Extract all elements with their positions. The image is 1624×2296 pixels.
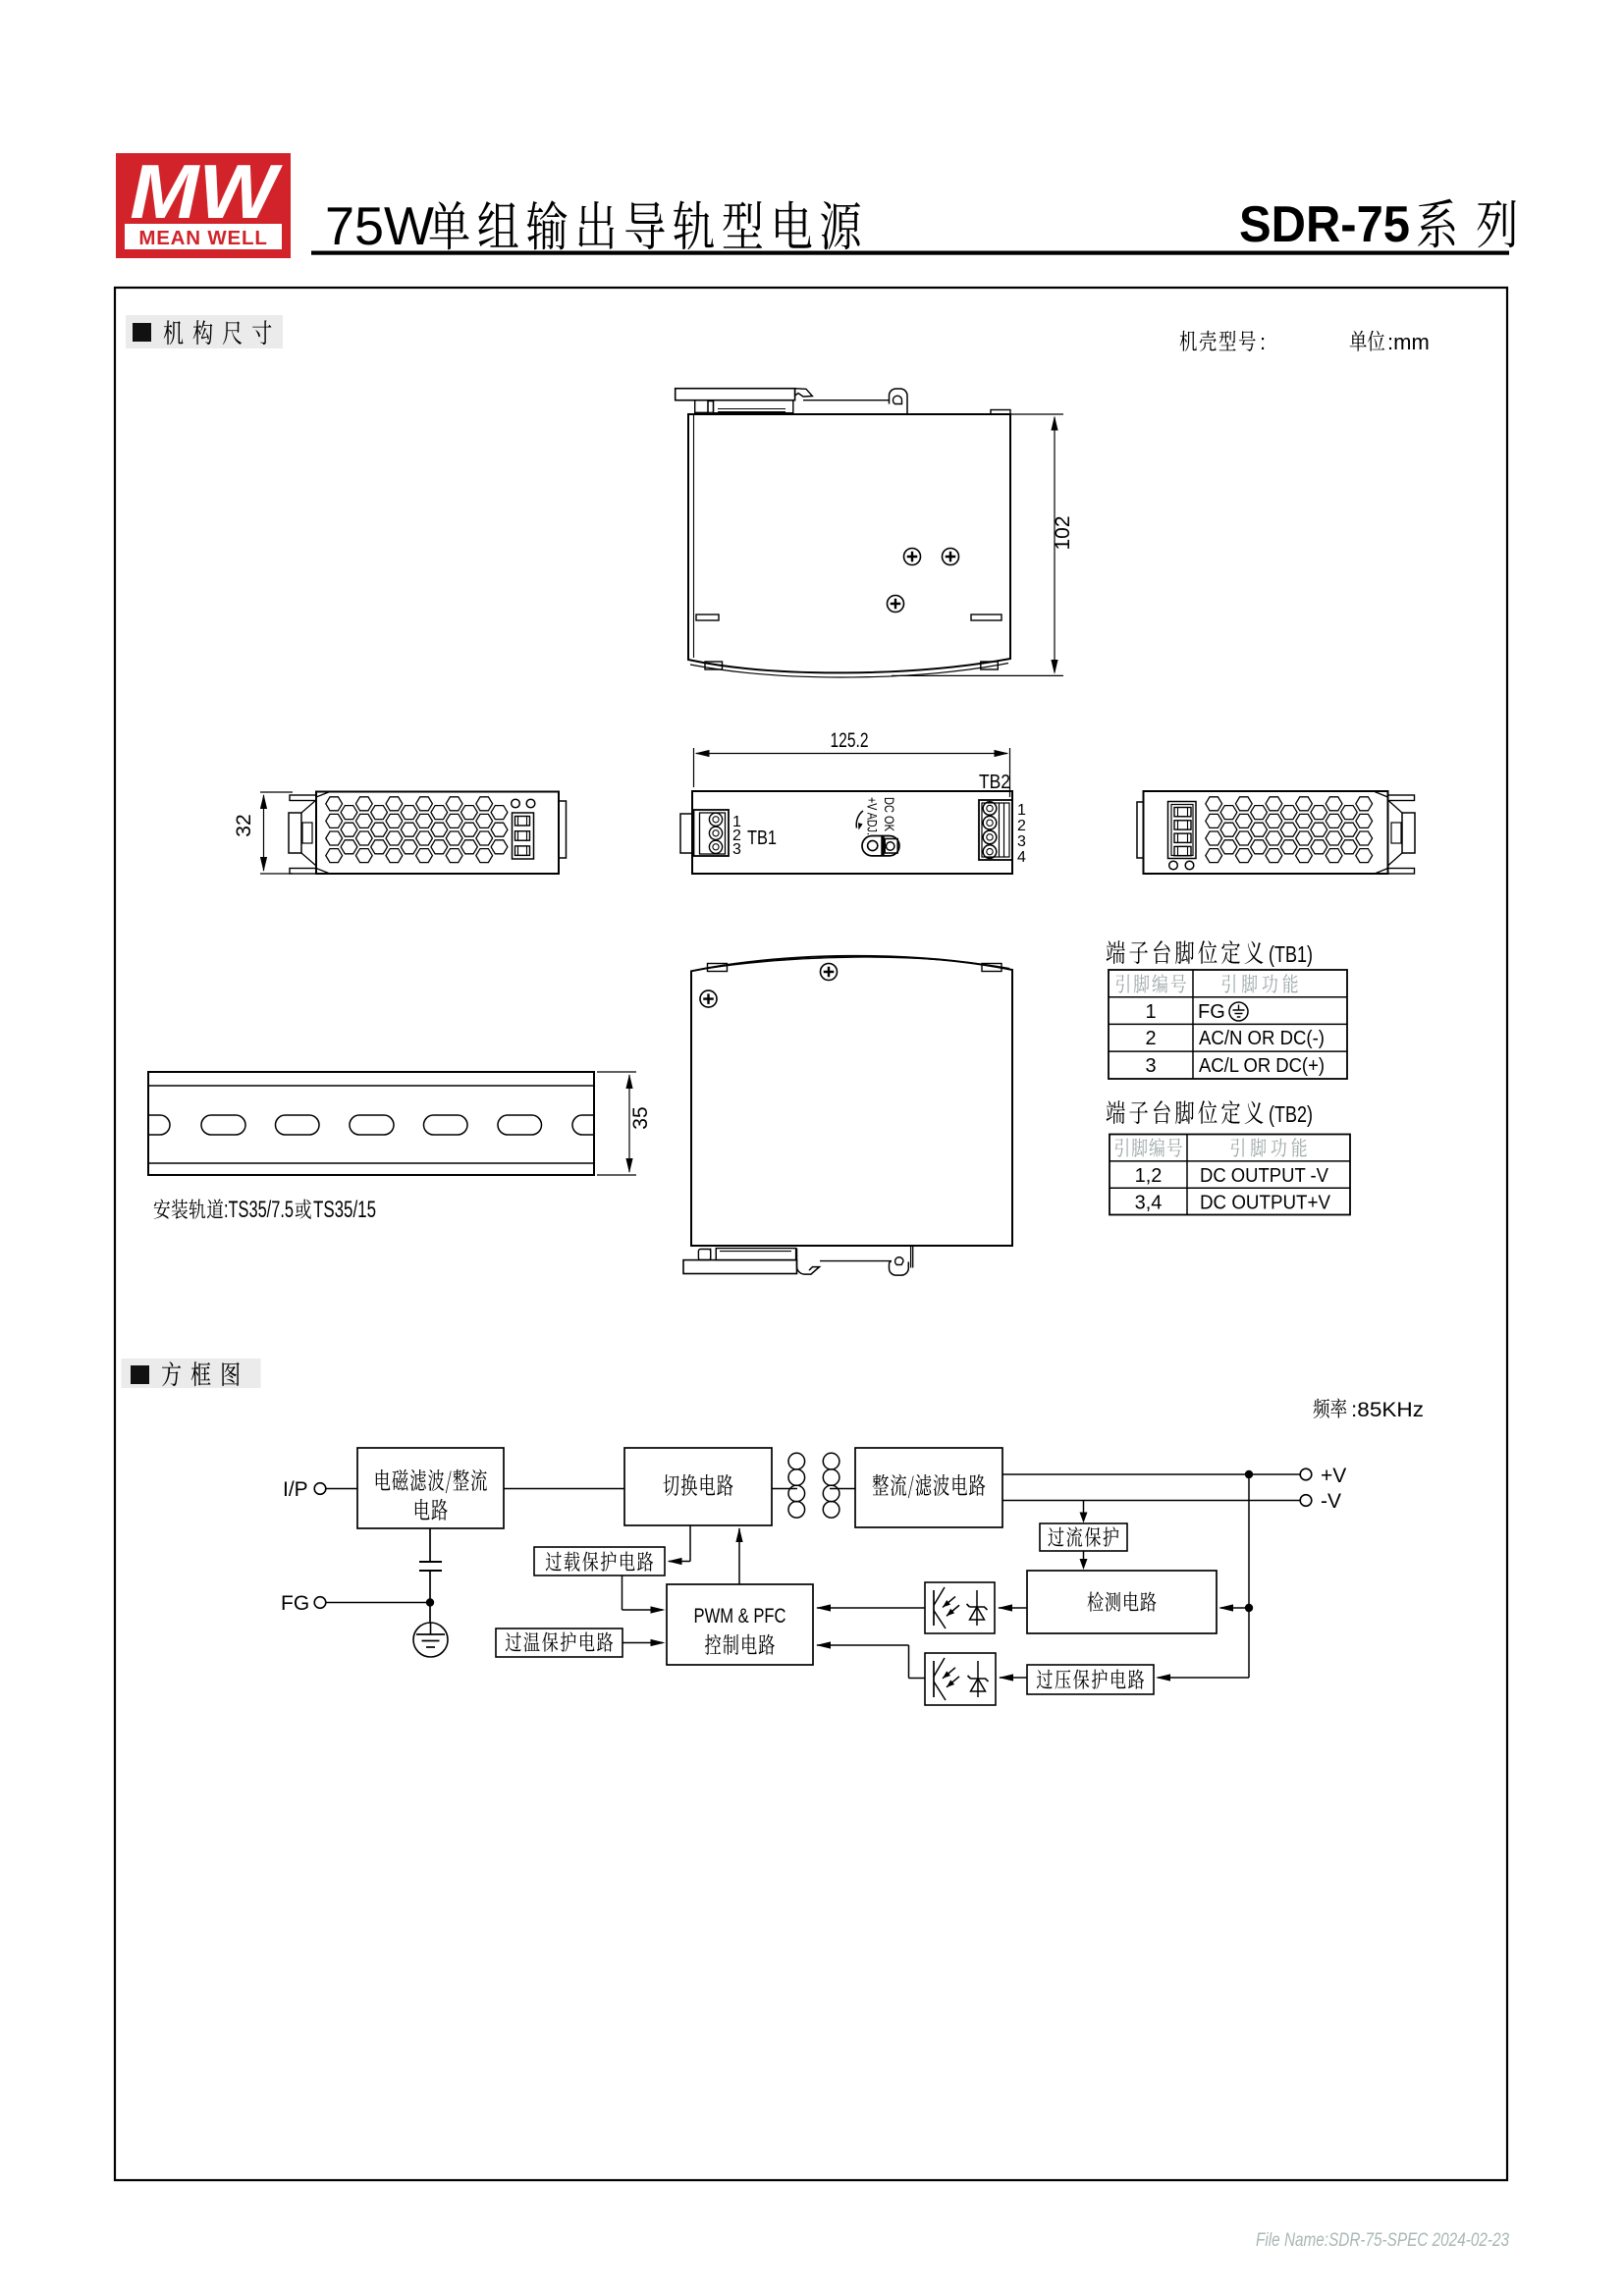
svg-text:(TB2): (TB2)	[1269, 1101, 1313, 1127]
svg-text:AC/L OR DC(+): AC/L OR DC(+)	[1199, 1055, 1325, 1077]
svg-text::: :	[1260, 330, 1266, 354]
svg-text:1: 1	[1017, 802, 1026, 819]
svg-text:I/P: I/P	[283, 1478, 308, 1501]
svg-text:1: 1	[1145, 1001, 1156, 1023]
svg-text:3,4: 3,4	[1135, 1193, 1163, 1214]
svg-text:+V: +V	[1321, 1465, 1346, 1487]
svg-text:DC OUTPUT -V: DC OUTPUT -V	[1200, 1165, 1329, 1187]
svg-text::mm: :mm	[1387, 330, 1430, 354]
svg-text:TB1: TB1	[747, 828, 777, 849]
svg-text:3: 3	[1017, 833, 1026, 850]
svg-text:DC OK: DC OK	[882, 797, 896, 831]
svg-text:TS35/15: TS35/15	[313, 1197, 376, 1223]
svg-text:TB2: TB2	[979, 772, 1010, 793]
svg-text:2: 2	[1017, 818, 1026, 834]
svg-text:35: 35	[629, 1106, 652, 1129]
svg-text:32: 32	[233, 814, 255, 836]
svg-text:SDR-75: SDR-75	[1239, 196, 1410, 253]
svg-text:MEAN WELL: MEAN WELL	[138, 227, 267, 249]
svg-text:3: 3	[1145, 1055, 1156, 1077]
svg-text:AC/N OR DC(-): AC/N OR DC(-)	[1199, 1028, 1325, 1049]
svg-text:1,2: 1,2	[1135, 1165, 1163, 1187]
svg-text:75W: 75W	[325, 195, 434, 256]
svg-text:MW: MW	[130, 150, 283, 235]
svg-text:-V: -V	[1321, 1490, 1341, 1513]
svg-text:PWM & PFC: PWM & PFC	[694, 1605, 786, 1628]
svg-text:3: 3	[732, 841, 741, 858]
svg-text:125.2: 125.2	[831, 729, 869, 752]
svg-text:102: 102	[1052, 515, 1074, 550]
svg-text:(TB1): (TB1)	[1269, 941, 1313, 967]
svg-text:DC OUTPUT+V: DC OUTPUT+V	[1200, 1193, 1331, 1214]
svg-text:4: 4	[1017, 849, 1026, 866]
svg-text:FG: FG	[281, 1592, 309, 1615]
svg-text:+V ADJ.: +V ADJ.	[865, 797, 880, 835]
svg-text::TS35/7.5: :TS35/7.5	[224, 1197, 294, 1223]
svg-text:File Name:SDR-75-SPEC 2024-02: File Name:SDR-75-SPEC 2024-02-23	[1256, 2230, 1509, 2251]
svg-text:FG: FG	[1198, 1001, 1225, 1023]
svg-text::85KHz: :85KHz	[1351, 1399, 1424, 1421]
svg-text:2: 2	[1145, 1028, 1156, 1049]
